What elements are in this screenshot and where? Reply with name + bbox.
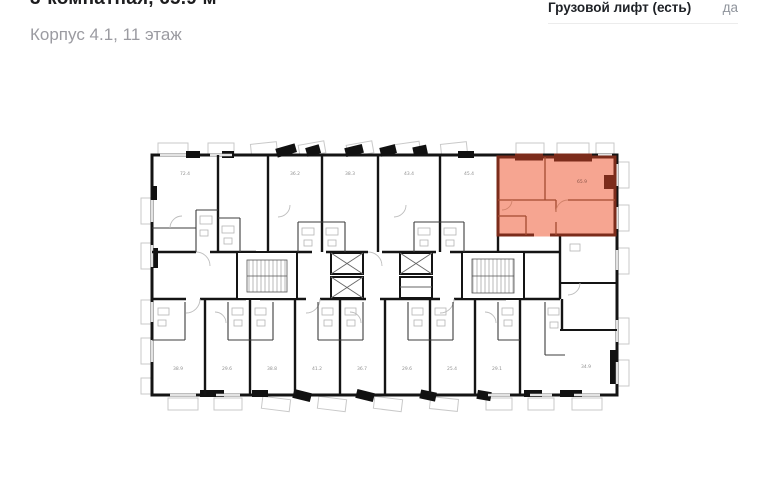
room-area-label: 29.1 — [492, 366, 502, 372]
floorplan: 65.9 72.4 36.2 38.3 43.4 45.4 38.9 29.6 … — [140, 118, 670, 418]
room-area-label: 43.4 — [404, 171, 414, 177]
listing-subtitle: Корпус 4.1, 11 этаж — [30, 25, 182, 45]
stairwell-1 — [237, 252, 297, 299]
room-area-label: 36.7 — [357, 366, 367, 372]
page: 3-комнатная, 65.9 м² Корпус 4.1, 11 этаж… — [0, 0, 770, 500]
room-area-label: 41.2 — [312, 366, 322, 372]
spec-label: Грузовой лифт (есть) — [548, 0, 691, 15]
room-area-label: 38.8 — [267, 366, 277, 372]
room-area-label: 38.3 — [345, 171, 355, 177]
room-area-label: 36.2 — [290, 171, 300, 177]
specs-panel: Грузовой лифт (есть) да — [548, 0, 738, 24]
room-area-label: 25.4 — [447, 366, 457, 372]
room-area-label: 38.9 — [173, 366, 183, 372]
room-area-label: 29.6 — [402, 366, 412, 372]
room-area-label: 72.4 — [180, 171, 190, 177]
spec-value: да — [723, 0, 738, 15]
spec-row-freight-elevator: Грузовой лифт (есть) да — [548, 0, 738, 15]
listing-title: 3-комнатная, 65.9 м² — [30, 0, 223, 10]
room-area-label: 34.9 — [581, 364, 591, 370]
room-area-label: 45.4 — [464, 171, 474, 177]
room-area-label: 29.6 — [222, 366, 232, 372]
divider — [548, 23, 738, 24]
stairwell-2 — [462, 252, 524, 299]
room-area-label: 65.9 — [577, 179, 587, 185]
highlighted-apartment[interactable]: 65.9 — [498, 154, 615, 236]
